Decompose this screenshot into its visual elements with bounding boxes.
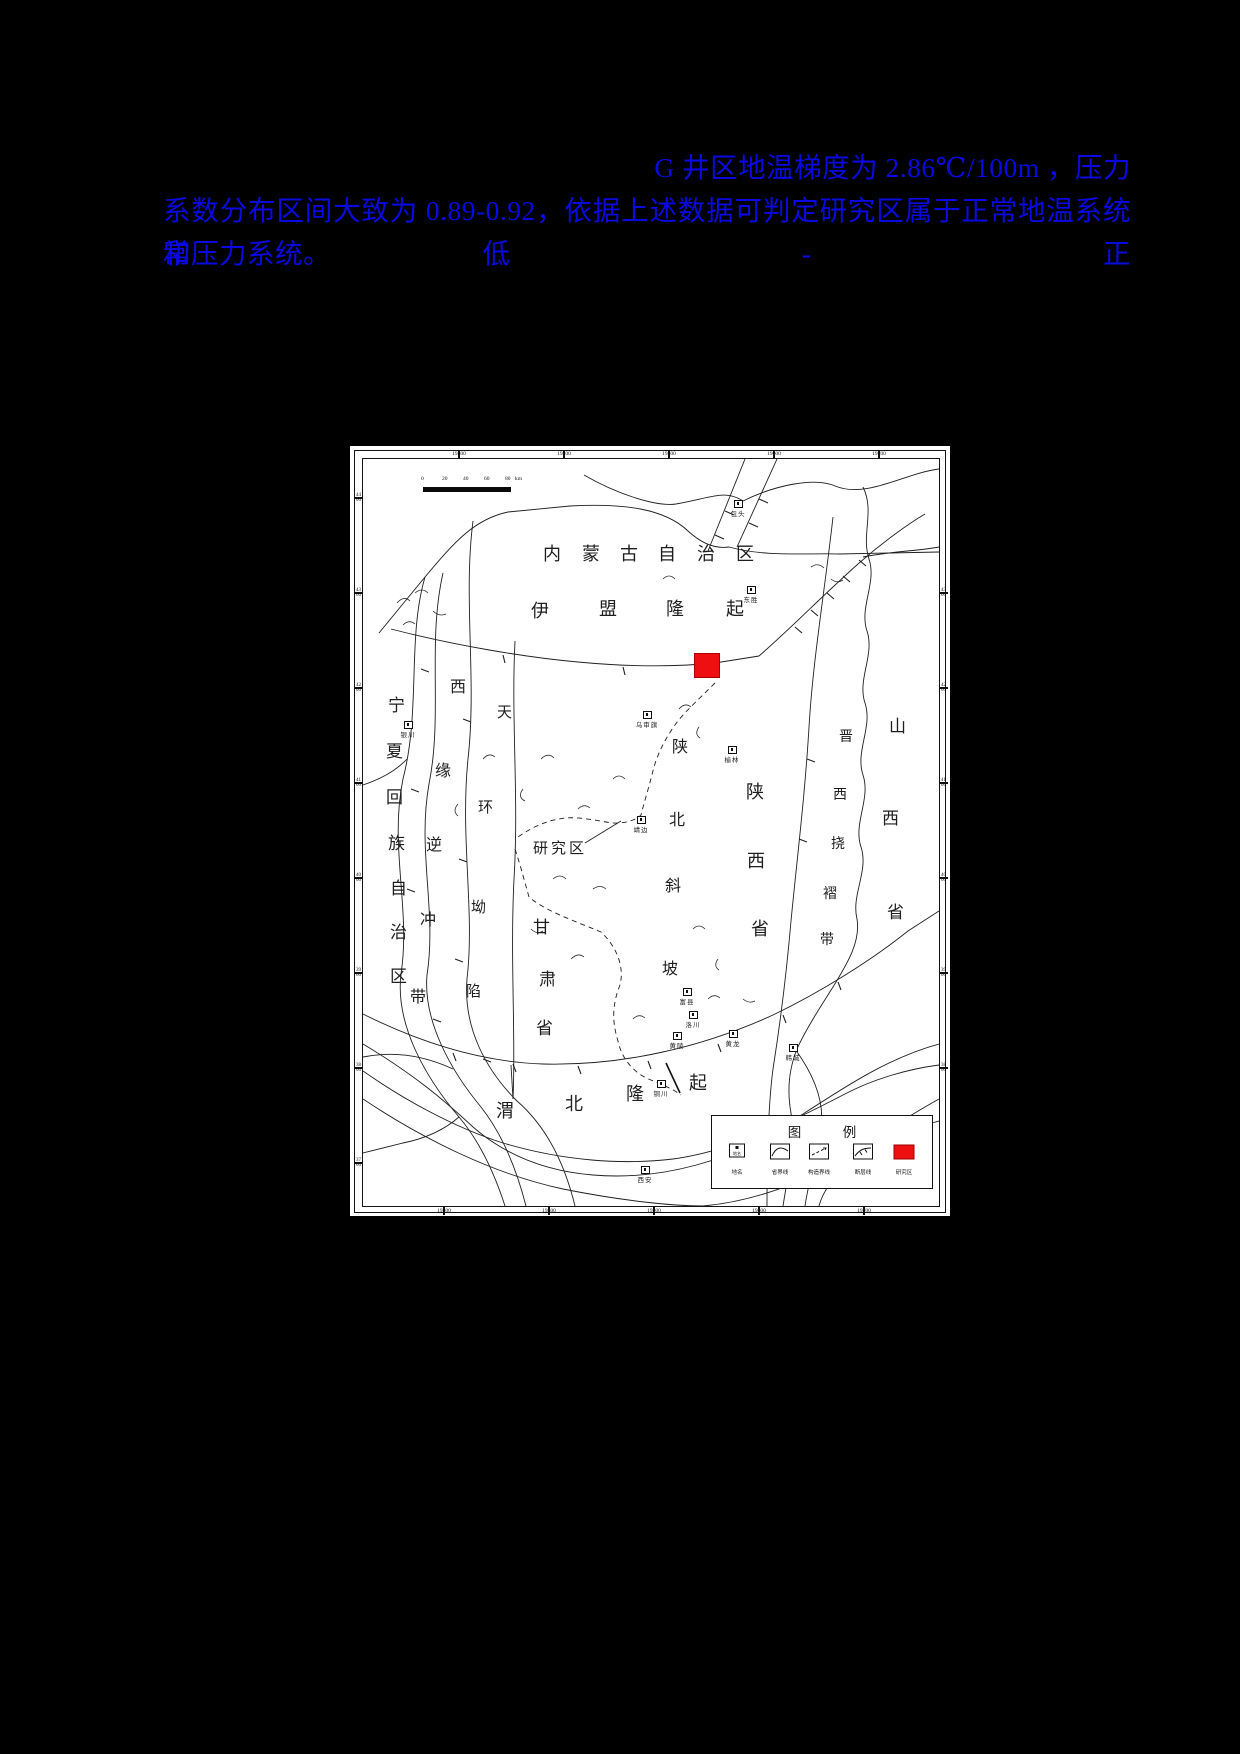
town-label: 靖边: [634, 824, 649, 834]
region-label-neimenggu-zizhiqu: 古: [620, 545, 638, 563]
town-label: 富县: [680, 996, 695, 1006]
map-frame: 020406080km 研究区 内蒙古自治区伊盟隆起渭北隆起宁夏回族自治区西缘逆…: [362, 458, 940, 1207]
axis-label-right: 4100: [938, 778, 949, 788]
legend-title: 图 例: [712, 1121, 932, 1141]
axis-label-right: 4000: [938, 873, 949, 883]
region-label-tianhuan-aoxian: 环: [478, 801, 493, 816]
paragraph-line-1: G 井区地温梯度为 2.86℃/100m ，压力: [163, 146, 1131, 189]
axis-label-bottom: 19300: [429, 1207, 459, 1215]
axis-label-right: 4200: [938, 683, 949, 693]
town-marker: [641, 1166, 650, 1174]
region-label-gansu-sheng: 省: [536, 1020, 553, 1037]
scale-bar-number: 60: [484, 476, 490, 482]
map-line-work: [363, 459, 939, 1206]
town-marker: [734, 500, 743, 508]
scale-bar-number: 20: [442, 476, 448, 482]
legend-province-line-icon: [769, 1143, 791, 1161]
axis-label-top: 19300: [444, 450, 474, 458]
town-marker: [643, 711, 652, 719]
region-label-ningxia-huizu-zizhiqu: 自: [390, 880, 407, 897]
region-label-shanxi-sheng: 省: [887, 904, 904, 921]
region-label-jinxi-naozhe-dai: 西: [833, 789, 847, 803]
map-figure: 020406080km 研究区 内蒙古自治区伊盟隆起渭北隆起宁夏回族自治区西缘逆…: [350, 446, 950, 1216]
region-label-jinxi-naozhe-dai: 褶: [823, 888, 837, 902]
region-label-weibei-longqi: 隆: [626, 1085, 644, 1103]
region-label-tianhuan-aoxian: 天: [497, 706, 512, 721]
town-marker: [747, 586, 756, 594]
axis-label-left: 4000: [353, 873, 364, 883]
axis-label-right: 4300: [938, 588, 949, 598]
town-marker-dot: [792, 1046, 795, 1049]
town-marker: [404, 721, 413, 729]
town-marker: [657, 1080, 666, 1088]
region-label-yimeng-longqi: 起: [726, 600, 744, 618]
town-marker: [689, 1011, 698, 1019]
axis-label-top: 19500: [654, 450, 684, 458]
scale-bar-unit: km: [515, 476, 522, 482]
axis-label-bottom: 19500: [639, 1207, 669, 1215]
town-marker-dot: [686, 990, 689, 993]
axis-label-left: 4200: [353, 683, 364, 693]
legend-symbol-town: 地名: [726, 1143, 748, 1166]
town-marker-dot: [660, 1082, 663, 1085]
region-label-ningxia-huizu-zizhiqu: 回: [386, 789, 403, 806]
region-label-shanxi-sheng: 山: [889, 718, 906, 735]
region-label-jinxi-naozhe-dai: 带: [820, 934, 834, 948]
region-label-xiyuan-nichong-dai: 带: [410, 990, 426, 1006]
region-label-ningxia-huizu-zizhiqu: 夏: [386, 743, 403, 760]
document-page: G 井区地温梯度为 2.86℃/100m ，压力 系数分布区间大致为 0.89-…: [0, 0, 1240, 1754]
legend-symbol-study: [893, 1143, 915, 1166]
town-marker-dot: [676, 1034, 679, 1037]
region-label-yimeng-longqi: 隆: [666, 600, 684, 618]
axis-label-top: 19600: [759, 450, 789, 458]
town-marker: [683, 988, 692, 996]
legend-town-symbol-icon: 地名: [726, 1143, 748, 1161]
region-label-ningxia-huizu-zizhiqu: 宁: [388, 697, 405, 714]
town-marker-dot: [731, 748, 734, 751]
region-label-neimenggu-zizhiqu: 区: [736, 545, 754, 563]
scale-bar: [423, 487, 511, 492]
legend-fault-line-icon: [852, 1143, 874, 1161]
town-marker: [673, 1032, 682, 1040]
region-label-ningxia-huizu-zizhiqu: 区: [390, 968, 407, 985]
axis-label-left: 4400: [353, 493, 364, 503]
town-marker-dot: [750, 588, 753, 591]
region-label-jinxi-naozhe-dai: 挠: [831, 838, 845, 852]
axis-label-bottom: 19700: [849, 1207, 879, 1215]
region-label-xiyuan-nichong-dai: 缘: [435, 764, 451, 780]
region-label-jinxi-naozhe-dai: 晋: [839, 731, 853, 745]
axis-label-bottom: 19400: [534, 1207, 564, 1215]
town-label: 黄龙: [726, 1038, 741, 1048]
town-label: 韩城: [786, 1052, 801, 1062]
legend-box: 图 例 地名地名省界线构造界线断层线研究区: [711, 1115, 933, 1189]
axis-label-top: 19700: [864, 450, 894, 458]
region-label-tianhuan-aoxian: 陷: [466, 985, 481, 1000]
region-label-yimeng-longqi: 伊: [531, 602, 549, 620]
svg-text:地名: 地名: [733, 1150, 741, 1156]
legend-symbol-province: [769, 1143, 791, 1166]
region-label-xiyuan-nichong-dai: 西: [450, 680, 466, 696]
town-label: 西安: [638, 1174, 653, 1184]
legend-item-label: 省界线: [772, 1168, 789, 1176]
axis-label-top: 19400: [549, 450, 579, 458]
axis-label-left: 4300: [353, 588, 364, 598]
region-label-tianhuan-aoxian: 坳: [471, 901, 486, 916]
town-marker-dot: [732, 1032, 735, 1035]
legend-tectonic-line-icon: [808, 1143, 830, 1161]
paragraph: G 井区地温梯度为 2.86℃/100m ，压力 系数分布区间大致为 0.89-…: [163, 146, 1131, 275]
town-label: 包头: [731, 508, 746, 518]
town-label: 乌审旗: [636, 719, 659, 729]
town-marker-dot: [692, 1013, 695, 1016]
region-label-weibei-longqi: 北: [565, 1095, 583, 1113]
region-label-xiyuan-nichong-dai: 冲: [420, 913, 436, 929]
town-marker-dot: [644, 1168, 647, 1171]
axis-label-bottom: 19600: [744, 1207, 774, 1215]
town-label: 洛川: [686, 1019, 701, 1029]
region-label-ningxia-huizu-zizhiqu: 治: [390, 924, 407, 941]
region-label-neimenggu-zizhiqu: 自: [658, 545, 676, 563]
region-label-shaanxi-sheng: 陕: [746, 783, 764, 801]
town-marker-dot: [407, 723, 410, 726]
town-marker: [789, 1044, 798, 1052]
town-marker: [728, 746, 737, 754]
axis-label-left: 4100: [353, 778, 364, 788]
axis-label-left: 3800: [353, 1063, 364, 1073]
town-label: 东胜: [744, 594, 759, 604]
legend-item-label: 地名: [731, 1168, 742, 1176]
town-marker-dot: [646, 713, 649, 716]
axis-label-right: 3800: [938, 1063, 949, 1073]
region-label-shanbei-xiepo: 坡: [662, 962, 678, 978]
region-label-ningxia-huizu-zizhiqu: 族: [388, 835, 405, 852]
paragraph-line-2: 系数分布区间大致为 0.89-0.92，依据上述数据可判定研究区属于正常地温系统…: [163, 189, 1131, 232]
scale-bar-number: 40: [463, 476, 469, 482]
axis-label-right: 3900: [938, 968, 949, 978]
legend-study-area-icon: [893, 1143, 915, 1161]
scale-bar-number: 0: [421, 476, 424, 482]
region-label-weibei-longqi: 渭: [496, 1102, 514, 1120]
axis-label-left: 3700: [353, 1158, 364, 1168]
region-label-shaanxi-sheng: 西: [747, 852, 765, 870]
legend-symbol-fault: [852, 1143, 874, 1166]
town-marker-dot: [640, 818, 643, 821]
region-label-shanbei-xiepo: 陕: [672, 740, 688, 756]
town-label: 铜川: [654, 1088, 669, 1098]
region-label-shanbei-xiepo: 北: [669, 813, 685, 829]
region-label-neimenggu-zizhiqu: 内: [543, 545, 561, 563]
region-label-neimenggu-zizhiqu: 治: [697, 545, 715, 563]
legend-item-label: 研究区: [896, 1168, 913, 1176]
study-area-label: 研究区: [533, 837, 587, 858]
region-label-neimenggu-zizhiqu: 蒙: [582, 545, 600, 563]
legend-item-label: 断层线: [855, 1168, 872, 1176]
scale-bar-number: 80: [505, 476, 511, 482]
legend-symbol-tectonic: [808, 1143, 830, 1166]
region-label-gansu-sheng: 肃: [539, 971, 556, 988]
town-marker: [729, 1030, 738, 1038]
region-label-yimeng-longqi: 盟: [599, 600, 617, 618]
town-marker-dot: [737, 502, 740, 505]
region-label-shanbei-xiepo: 斜: [665, 879, 681, 895]
region-label-shaanxi-sheng: 省: [751, 920, 769, 938]
town-marker: [637, 816, 646, 824]
town-label: 黄陵: [670, 1040, 685, 1050]
legend-item-label: 构造界线: [808, 1168, 830, 1176]
town-label: 榆林: [725, 754, 740, 764]
region-label-weibei-longqi: 起: [689, 1074, 707, 1092]
region-label-gansu-sheng: 甘: [533, 919, 550, 936]
study-area-marker: [694, 653, 720, 678]
town-label: 银川: [401, 729, 416, 739]
region-label-xiyuan-nichong-dai: 逆: [426, 838, 442, 854]
region-label-shanxi-sheng: 西: [882, 810, 899, 827]
axis-label-left: 3900: [353, 968, 364, 978]
